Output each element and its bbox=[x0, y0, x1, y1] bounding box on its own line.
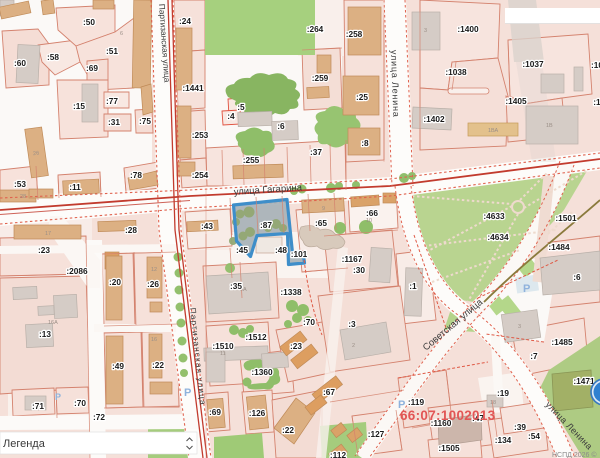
svg-text::1441: :1441 bbox=[182, 83, 204, 93]
svg-text::22: :22 bbox=[282, 425, 294, 435]
svg-text::54: :54 bbox=[528, 431, 540, 441]
svg-text::1167: :1167 bbox=[342, 254, 363, 264]
svg-text:10: 10 bbox=[366, 218, 372, 224]
svg-text::1038: :1038 bbox=[445, 67, 467, 77]
svg-text::255: :255 bbox=[243, 155, 260, 165]
svg-text::70: :70 bbox=[303, 317, 315, 327]
svg-text::71: :71 bbox=[32, 401, 44, 411]
svg-text::1360: :1360 bbox=[251, 367, 273, 377]
svg-text:Р: Р bbox=[55, 392, 61, 402]
svg-text::58: :58 bbox=[47, 52, 59, 62]
svg-text::51: :51 bbox=[106, 46, 118, 56]
svg-text::25: :25 bbox=[356, 92, 368, 102]
svg-text::19: :19 bbox=[497, 388, 509, 398]
svg-text::119: :119 bbox=[408, 397, 425, 407]
svg-text::72: :72 bbox=[93, 412, 105, 422]
svg-text::53: :53 bbox=[14, 179, 26, 189]
svg-text::5: :5 bbox=[237, 102, 245, 112]
svg-text:НСПД 2026 ©: НСПД 2026 © bbox=[552, 451, 597, 458]
svg-text::75: :75 bbox=[139, 116, 151, 126]
svg-text::7: :7 bbox=[530, 351, 538, 361]
svg-text:9: 9 bbox=[322, 206, 325, 212]
svg-text::253: :253 bbox=[192, 130, 209, 140]
svg-text::1484: :1484 bbox=[548, 242, 570, 252]
svg-text::45: :45 bbox=[236, 245, 248, 255]
svg-text::70: :70 bbox=[74, 398, 86, 408]
svg-text:2: 2 bbox=[352, 343, 355, 349]
svg-text:11: 11 bbox=[220, 351, 226, 357]
svg-text::31: :31 bbox=[108, 117, 120, 127]
svg-text::67: :67 bbox=[323, 387, 335, 397]
svg-text::65: :65 bbox=[315, 218, 327, 228]
svg-text:3: 3 bbox=[518, 324, 521, 330]
svg-text::134: :134 bbox=[495, 435, 512, 445]
svg-text::1402: :1402 bbox=[423, 114, 445, 124]
svg-text::69: :69 bbox=[209, 407, 221, 417]
svg-text::1471: :1471 bbox=[573, 376, 595, 386]
svg-text::26: :26 bbox=[147, 279, 159, 289]
svg-text::1: :1 bbox=[593, 97, 600, 107]
svg-text::254: :254 bbox=[192, 170, 209, 180]
svg-text::50: :50 bbox=[83, 17, 95, 27]
svg-text::6: :6 bbox=[277, 121, 285, 131]
svg-text::11: :11 bbox=[69, 182, 81, 192]
svg-text:26: 26 bbox=[33, 150, 40, 157]
svg-text::4: :4 bbox=[227, 111, 235, 121]
svg-text::4633: :4633 bbox=[483, 211, 505, 221]
svg-text:Р: Р bbox=[184, 387, 191, 399]
svg-text::48: :48 bbox=[275, 245, 287, 255]
svg-text:6: 6 bbox=[120, 31, 123, 37]
svg-text::77: :77 bbox=[106, 96, 118, 106]
svg-text::35: :35 bbox=[230, 281, 242, 291]
svg-text::87: :87 bbox=[260, 220, 272, 230]
svg-text::259: :259 bbox=[312, 73, 329, 83]
svg-text:12: 12 bbox=[151, 267, 157, 273]
svg-text:18: 18 bbox=[490, 400, 496, 406]
svg-text:28: 28 bbox=[20, 194, 26, 200]
svg-text::23: :23 bbox=[290, 341, 302, 351]
svg-text::258: :258 bbox=[346, 29, 363, 39]
svg-text::1512: :1512 bbox=[245, 332, 267, 342]
svg-text::1405: :1405 bbox=[505, 96, 527, 106]
svg-text::1501: :1501 bbox=[555, 213, 577, 223]
svg-text::49: :49 bbox=[112, 361, 124, 371]
svg-text:16: 16 bbox=[151, 337, 157, 343]
svg-text:16А: 16А bbox=[48, 320, 58, 326]
svg-text::264: :264 bbox=[307, 24, 324, 34]
svg-text::3: :3 bbox=[348, 319, 356, 329]
svg-text::13: :13 bbox=[39, 329, 51, 339]
svg-text::24: :24 bbox=[179, 16, 191, 26]
svg-text::30: :30 bbox=[353, 265, 365, 275]
svg-text::127: :127 bbox=[368, 429, 385, 439]
svg-text::101: :101 bbox=[291, 249, 308, 259]
svg-text::1400: :1400 bbox=[457, 24, 479, 34]
svg-text::15: :15 bbox=[73, 101, 85, 111]
svg-text:66:07:1002013: 66:07:1002013 bbox=[400, 408, 496, 423]
svg-text::22: :22 bbox=[152, 360, 164, 370]
svg-text::39: :39 bbox=[514, 422, 526, 432]
svg-text::4634: :4634 bbox=[487, 232, 509, 242]
svg-text::1037: :1037 bbox=[522, 59, 544, 69]
svg-text::20: :20 bbox=[109, 277, 121, 287]
svg-text::112: :112 bbox=[330, 450, 347, 458]
svg-text::6: :6 bbox=[573, 272, 581, 282]
svg-text::1505: :1505 bbox=[438, 443, 460, 453]
svg-text:3: 3 bbox=[424, 28, 427, 34]
svg-text::2086: :2086 bbox=[66, 266, 88, 276]
svg-text::1485: :1485 bbox=[551, 337, 573, 347]
svg-text::78: :78 bbox=[130, 170, 142, 180]
svg-text::1338: :1338 bbox=[280, 287, 302, 297]
svg-text::60: :60 bbox=[14, 58, 26, 68]
svg-text::126: :126 bbox=[249, 408, 266, 418]
svg-text:1ВА: 1ВА bbox=[488, 128, 499, 134]
svg-text::66: :66 bbox=[366, 208, 378, 218]
svg-text::69: :69 bbox=[86, 63, 98, 73]
svg-text:1В: 1В bbox=[546, 123, 553, 129]
svg-text::1: :1 bbox=[409, 281, 417, 291]
svg-text::43: :43 bbox=[201, 221, 213, 231]
svg-text::8: :8 bbox=[361, 138, 369, 148]
svg-text::10: :10 bbox=[591, 60, 600, 70]
svg-text::1510: :1510 bbox=[212, 341, 234, 351]
svg-text::23: :23 bbox=[38, 245, 50, 255]
svg-text:Легенда: Легенда bbox=[3, 438, 46, 450]
svg-text:Р: Р bbox=[523, 283, 530, 295]
svg-text::37: :37 bbox=[310, 147, 322, 157]
svg-text:17: 17 bbox=[45, 231, 51, 237]
svg-text::28: :28 bbox=[125, 225, 137, 235]
